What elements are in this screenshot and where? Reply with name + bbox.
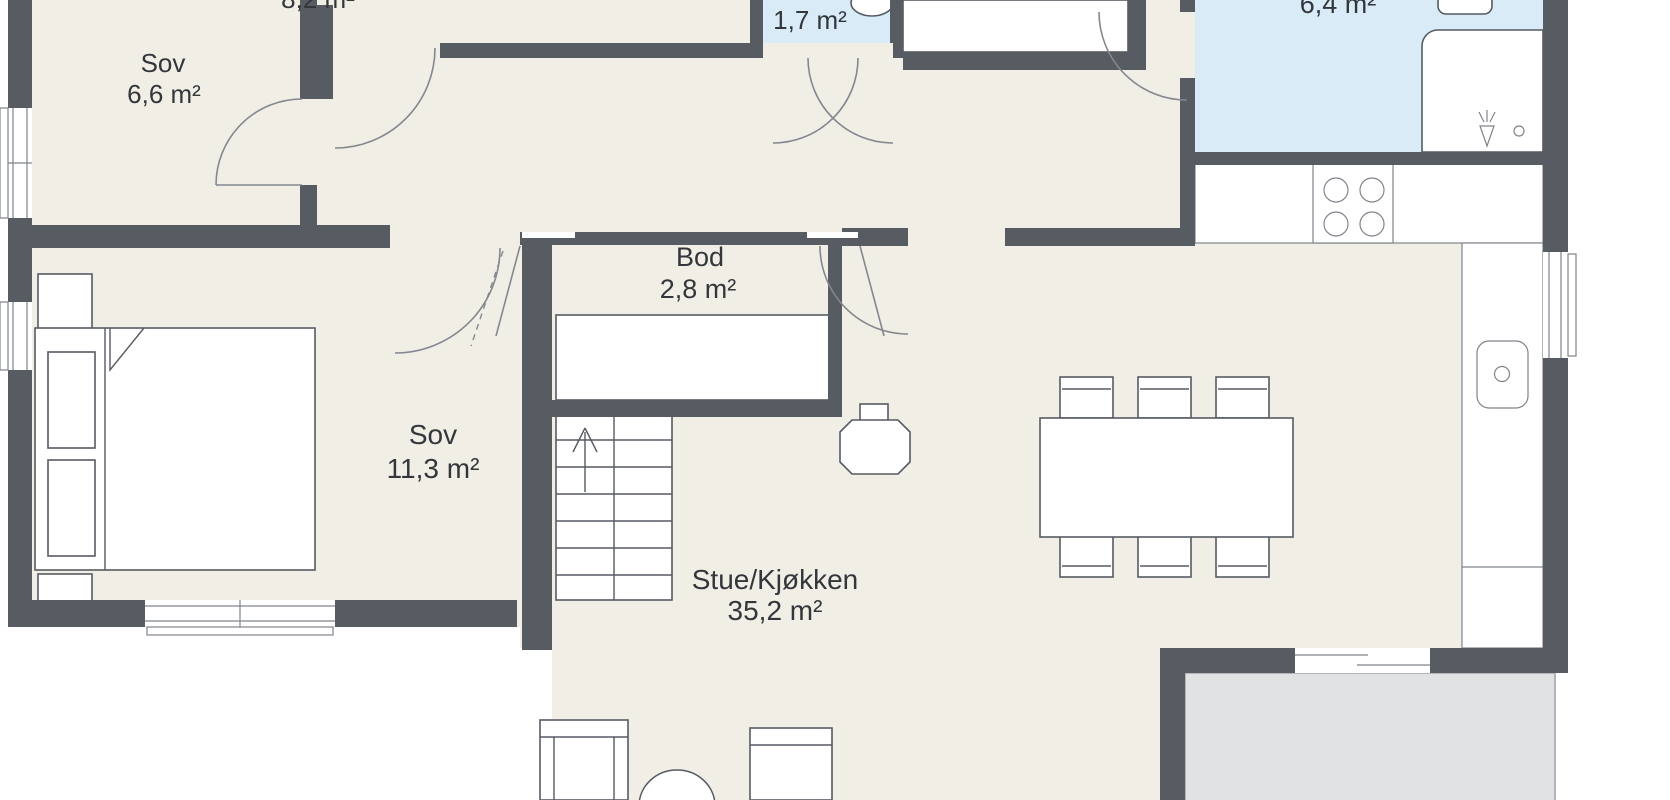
chair: [1060, 377, 1113, 418]
terrace-sliding-door: [1295, 648, 1430, 673]
floorplan-drawing: Sov 6,6 m² 1,7 m² Bod 2,8 m² Sov 11,3 m²…: [0, 0, 1670, 800]
nightstand-top: [38, 274, 92, 330]
hall-closet: [903, 0, 1128, 52]
pillow: [48, 352, 95, 448]
kitchen-counter-right: [1462, 243, 1543, 648]
window-right: [1543, 252, 1576, 358]
label-bedroom-large-area: 11,3 m²: [387, 453, 480, 484]
terrace: [1185, 673, 1555, 800]
label-living-kitchen-name: Stue/Kjøkken: [692, 564, 859, 595]
pillow: [48, 460, 95, 556]
chair: [1138, 536, 1191, 577]
label-storage-area: 2,8 m²: [660, 274, 737, 304]
dining-table: [1040, 418, 1293, 537]
floor-living-extension: [552, 648, 1160, 800]
chair: [1216, 377, 1269, 418]
label-top-room-area-partial: 8,2 m²: [281, 0, 355, 14]
label-bathroom-area-partial: 6,4 m²: [1300, 0, 1377, 19]
armchair-right: [750, 728, 832, 800]
chair: [1216, 536, 1269, 577]
washbasin-icon: [1438, 0, 1492, 14]
label-living-kitchen-area: 35,2 m²: [728, 595, 823, 626]
chimney-icon: [840, 420, 910, 474]
window-left-upper: [0, 108, 32, 218]
label-bedroom-small-name: Sov: [141, 48, 186, 78]
window-bottom: [145, 600, 335, 635]
window-left-lower: [0, 302, 32, 370]
chair: [1138, 377, 1191, 418]
staircase: [556, 413, 672, 600]
label-wc-area: 1,7 m²: [773, 5, 847, 35]
label-storage-name: Bod: [676, 242, 724, 272]
label-bedroom-large-name: Sov: [409, 419, 457, 450]
kitchen-sink: [1477, 341, 1528, 408]
label-bedroom-small-area: 6,6 m²: [127, 79, 201, 109]
storage-wardrobe: [556, 315, 830, 400]
floorplan-canvas: Sov 6,6 m² 1,7 m² Bod 2,8 m² Sov 11,3 m²…: [0, 0, 1670, 800]
dining-set: [1040, 377, 1293, 577]
armchair-left: [540, 720, 628, 800]
chair: [1060, 536, 1113, 577]
